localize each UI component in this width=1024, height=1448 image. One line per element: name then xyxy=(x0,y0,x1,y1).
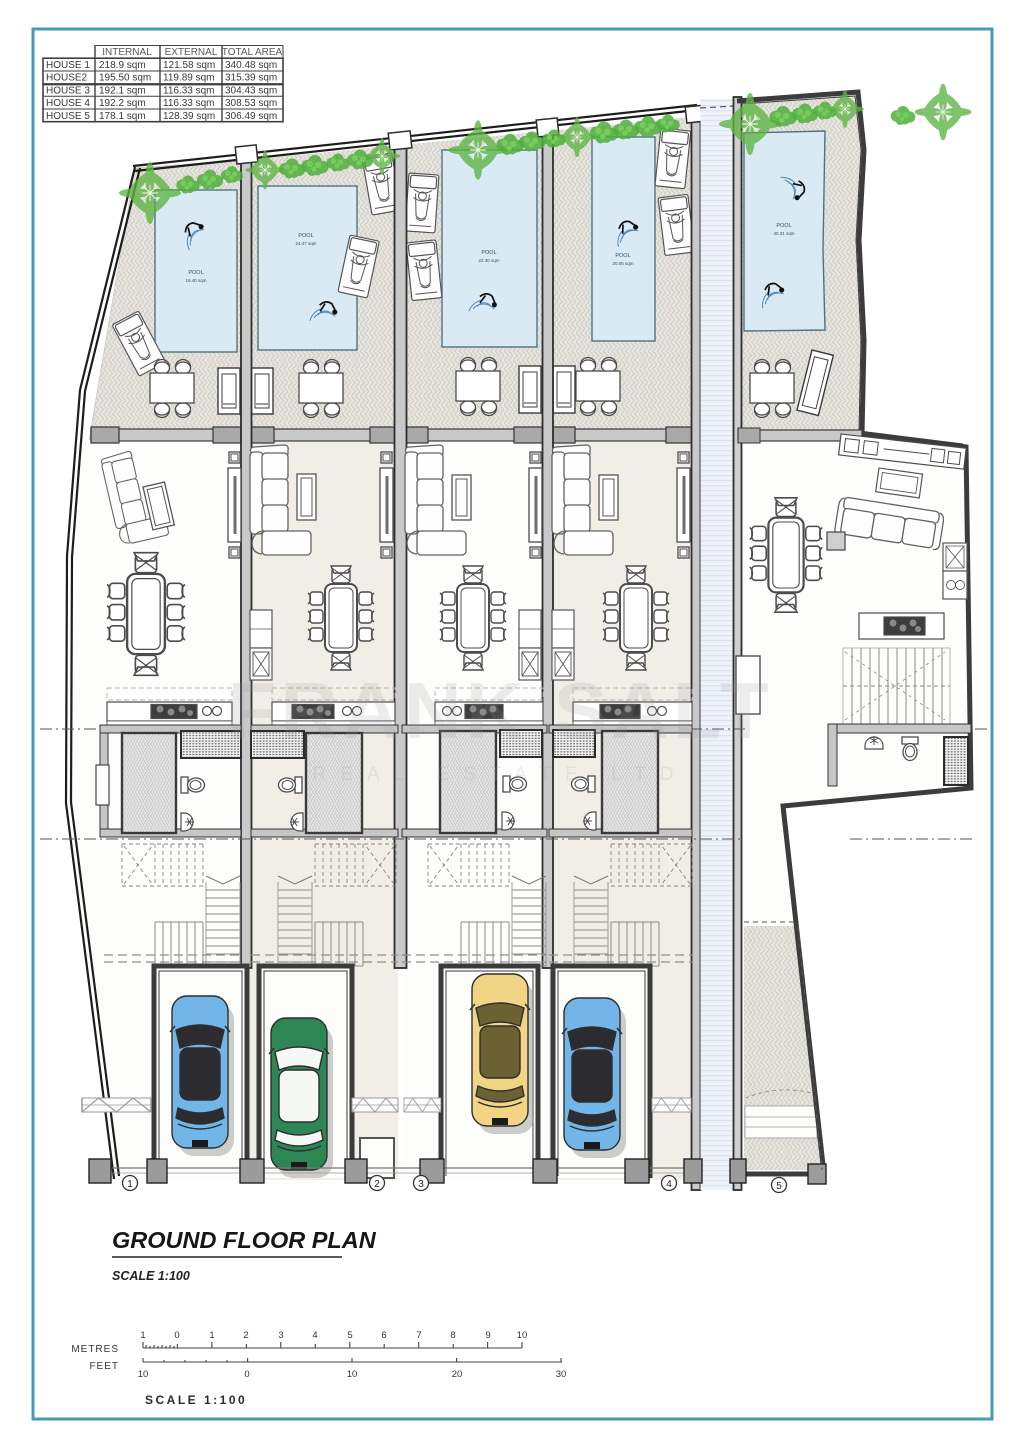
svg-text:HOUSE 4: HOUSE 4 xyxy=(46,98,90,109)
svg-text:315.39 sqm: 315.39 sqm xyxy=(225,73,277,84)
svg-text:3: 3 xyxy=(278,1330,283,1341)
svg-text:308.53 sqm: 308.53 sqm xyxy=(225,98,277,109)
svg-text:POOL: POOL xyxy=(481,250,496,256)
svg-text:116.33 sqm: 116.33 sqm xyxy=(163,85,215,96)
svg-text:192.1 sqm: 192.1 sqm xyxy=(99,85,146,96)
svg-text:178.1 sqm: 178.1 sqm xyxy=(99,111,146,122)
svg-text:128.39 sqm: 128.39 sqm xyxy=(163,111,215,122)
svg-text:7: 7 xyxy=(416,1330,421,1341)
svg-text:METRES: METRES xyxy=(71,1344,119,1355)
svg-text:195.50 sqm: 195.50 sqm xyxy=(99,73,151,84)
svg-text:20: 20 xyxy=(452,1369,463,1380)
svg-text:22.30 sqm: 22.30 sqm xyxy=(478,258,499,263)
svg-text:HOUSE2: HOUSE2 xyxy=(46,73,88,84)
svg-text:SCALE 1:100: SCALE 1:100 xyxy=(145,1393,247,1407)
svg-text:6: 6 xyxy=(381,1330,386,1341)
svg-text:0: 0 xyxy=(244,1369,249,1380)
svg-text:8: 8 xyxy=(450,1330,455,1341)
svg-text:20.06 sqm: 20.06 sqm xyxy=(612,261,633,266)
svg-text:4: 4 xyxy=(312,1330,317,1341)
svg-text:9: 9 xyxy=(485,1330,490,1341)
svg-text:EXTERNAL: EXTERNAL xyxy=(165,47,218,58)
svg-text:2: 2 xyxy=(374,1179,380,1190)
svg-text:REAL ESTATE LTD: REAL ESTATE LTD xyxy=(312,764,687,785)
svg-text:24.47 sqm: 24.47 sqm xyxy=(295,241,316,246)
svg-text:SCALE 1:100: SCALE 1:100 xyxy=(112,1269,190,1283)
svg-text:POOL: POOL xyxy=(298,233,313,239)
svg-text:1: 1 xyxy=(127,1179,133,1190)
svg-text:1: 1 xyxy=(140,1330,145,1341)
svg-text:218.9 sqm: 218.9 sqm xyxy=(99,60,146,71)
svg-text:16.40 sqm: 16.40 sqm xyxy=(185,278,206,283)
svg-text:INTERNAL: INTERNAL xyxy=(102,47,152,58)
svg-text:306.49 sqm: 306.49 sqm xyxy=(225,111,277,122)
svg-text:1: 1 xyxy=(209,1330,214,1341)
svg-text:FEET: FEET xyxy=(89,1361,119,1372)
svg-text:10: 10 xyxy=(138,1369,149,1380)
svg-text:340.48 sqm: 340.48 sqm xyxy=(225,60,277,71)
svg-text:5: 5 xyxy=(347,1330,352,1341)
svg-text:FRANK SALT: FRANK SALT xyxy=(227,666,772,755)
svg-text:POOL: POOL xyxy=(615,253,630,259)
svg-text:121.58 sqm: 121.58 sqm xyxy=(163,60,215,71)
svg-text:POOL: POOL xyxy=(776,223,791,229)
svg-text:192.2 sqm: 192.2 sqm xyxy=(99,98,146,109)
svg-text:HOUSE 5: HOUSE 5 xyxy=(46,111,90,122)
svg-text:10: 10 xyxy=(517,1330,528,1341)
svg-text:119.89 sqm: 119.89 sqm xyxy=(163,73,215,84)
svg-text:0: 0 xyxy=(174,1330,179,1341)
svg-text:TOTAL AREA: TOTAL AREA xyxy=(222,47,283,58)
svg-text:2: 2 xyxy=(243,1330,248,1341)
svg-text:GROUND FLOOR PLAN: GROUND FLOOR PLAN xyxy=(112,1227,377,1253)
svg-text:5: 5 xyxy=(776,1181,782,1192)
svg-text:40.31 sqm: 40.31 sqm xyxy=(773,231,794,236)
svg-text:HOUSE 3: HOUSE 3 xyxy=(46,85,90,96)
svg-text:HOUSE 1: HOUSE 1 xyxy=(46,60,90,71)
svg-text:304.43 sqm: 304.43 sqm xyxy=(225,85,277,96)
svg-text:POOL: POOL xyxy=(188,270,203,276)
svg-text:3: 3 xyxy=(418,1179,424,1190)
svg-text:10: 10 xyxy=(347,1369,358,1380)
svg-text:30: 30 xyxy=(556,1369,567,1380)
svg-text:116.33 sqm: 116.33 sqm xyxy=(163,98,215,109)
svg-text:4: 4 xyxy=(666,1179,672,1190)
